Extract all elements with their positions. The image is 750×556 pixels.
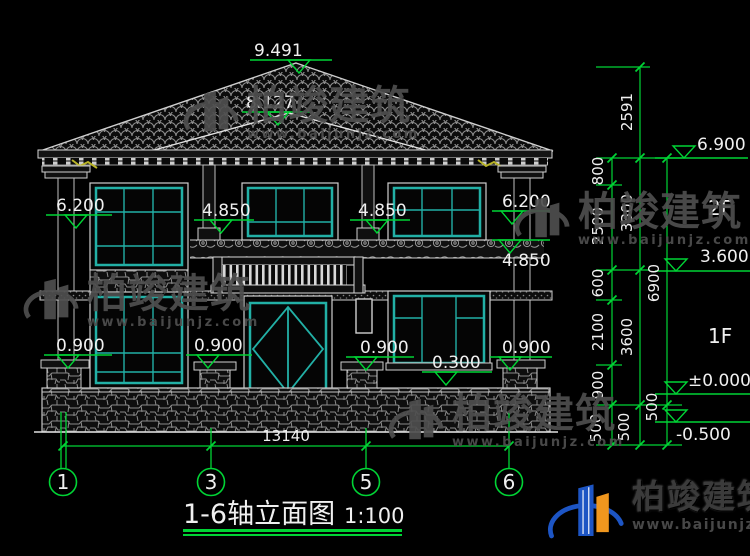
elevation-value: 3.600 [700,247,749,267]
elevation-value: 4.850 [502,251,551,271]
left-window-spandrel [90,270,188,292]
brand-logo-text: 柏竣建筑 [632,480,750,515]
center-window-2f [242,183,338,240]
drawing-title: 1-6轴立面图 [183,499,335,530]
dim-800: 800 [589,157,607,186]
left-window-2f [90,183,188,270]
elevation-value: 4.850 [358,201,407,221]
axis-number-3: 3 [205,470,218,494]
stone-plinth [34,388,558,432]
elevation-value: 0.900 [360,338,409,358]
decorative-frieze-band [190,240,544,258]
eave-band [38,150,552,168]
brand-logo-icon [542,480,626,548]
elevation-value: 8.127 [246,93,295,113]
floor-tag-1f: 1F [708,324,732,348]
brand-logo-url: www.baijunjz.com [632,517,750,533]
elevation-value: 4.850 [202,201,251,221]
dim-3300: 3300 [618,194,636,232]
elevation-value: ±0.000 [688,371,750,391]
elevation-value: 0.900 [194,336,243,356]
dim-500-b: 500 [615,413,633,442]
dim-900: 900 [589,371,607,400]
drawing-scale: 1:100 [344,504,405,528]
small-window [356,299,372,333]
axis-number-1: 1 [57,470,70,494]
axis-number-5: 5 [360,470,373,494]
elevation-value: 6.900 [697,135,746,155]
elevation-value: 0.900 [502,338,551,358]
floor-tag-2f: 2F [708,196,732,220]
axis-bubbles: 1 3 5 6 [50,469,523,496]
elevation-value: 6.200 [502,192,551,212]
brand-logo: 柏竣建筑 www.baijunjz.com [542,480,750,548]
drawing-title-block: 1-6轴立面图 1:100 [183,499,405,536]
marker-eave-6900: 6.900 [655,135,748,158]
dim-6900: 6900 [645,264,663,302]
dim-3600: 3600 [618,318,636,356]
dim-500-c: 500 [643,393,661,422]
marker-zero: ±0.000 [655,371,750,394]
dim-total-width: 13140 [262,427,310,445]
elevation-value: -0.500 [676,425,731,445]
dim-500-a: 500 [587,414,605,443]
elevation-drawing-canvas: 9.491 8.127 6.200 4.850 4.850 6.200 4.85… [0,0,750,556]
dimension-texts: 2591 800 2500 600 2100 900 500 3300 3600… [587,93,663,442]
dim-2500: 2500 [589,207,607,245]
dimension-chains [596,63,682,450]
elevation-value: 9.491 [254,41,303,61]
dim-roof-height: 2591 [618,93,636,131]
hip-roof [40,63,553,152]
marker-site: -0.500 [655,410,750,445]
left-window-1f [90,292,188,388]
elevation-value: 0.900 [56,336,105,356]
dim-600: 600 [589,269,607,298]
entry-door [244,296,332,400]
elevation-value: 6.200 [56,196,105,216]
floor-tags: 2F 1F [708,196,732,348]
balcony-balustrade [211,257,365,293]
marker-3600: 3.600 [655,247,750,271]
cad-drawing: 9.491 8.127 6.200 4.850 4.850 6.200 4.85… [0,0,750,556]
marker-6200-right: 6.200 [492,192,551,224]
axis-number-6: 6 [503,470,516,494]
elevation-value: 0.300 [432,353,481,373]
dim-2100: 2100 [589,313,607,351]
